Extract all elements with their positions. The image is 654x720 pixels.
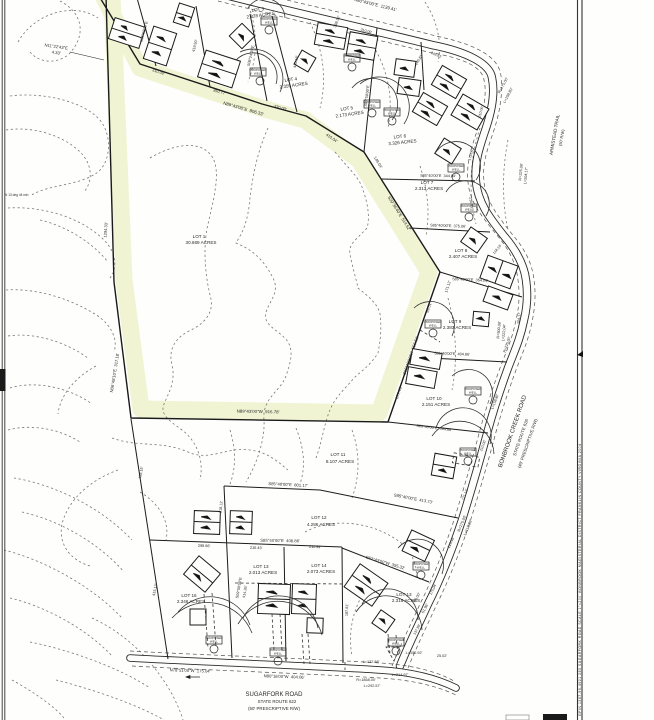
svg-text:LOT 13: LOT 13 [253, 564, 269, 569]
svg-text:WELL: WELL [388, 111, 397, 115]
svg-text:30.689 ACRES: 30.689 ACRES [186, 240, 217, 245]
svg-text:4.286 ACRES: 4.286 ACRES [307, 522, 335, 527]
svg-text:L=292.57': L=292.57' [364, 684, 381, 688]
svg-text:L=137.88': L=137.88' [363, 660, 380, 664]
svg-text:WELL: WELL [210, 639, 219, 643]
svg-text:2.073 ACRES: 2.073 ACRES [307, 569, 335, 574]
svg-text:LOT 12: LOT 12 [311, 515, 327, 520]
svg-text:WELL: WELL [254, 71, 263, 75]
svg-text:LOT 7: LOT 7 [421, 180, 434, 185]
svg-text:WELL: WELL [265, 20, 274, 24]
svg-text:LOT 13: LOT 13 [396, 592, 412, 597]
svg-text:2.383 ACRES: 2.383 ACRES [443, 325, 471, 330]
svg-text:WELL: WELL [417, 565, 426, 569]
svg-text:S85°40'00"E 344.04': S85°40'00"E 344.04' [420, 174, 456, 179]
svg-text:WELL: WELL [452, 167, 461, 171]
svg-text:(50' PRESCRIPTIVE R/W): (50' PRESCRIPTIVE R/W) [248, 706, 300, 711]
svg-text:LOT 11: LOT 11 [331, 452, 346, 457]
svg-text:LOT 8: LOT 8 [455, 248, 468, 253]
svg-text:N89°43'00"W 916.78': N89°43'00"W 916.78' [237, 409, 280, 415]
svg-text:WELL: WELL [368, 103, 377, 107]
svg-text:2.013 ACRES: 2.013 ACRES [249, 570, 277, 575]
svg-text:211.59': 211.59' [309, 545, 321, 549]
svg-text:GPIN 1387-96-4521 283 SUGARFOR: GPIN 1387-96-4521 283 SUGARFORK ROAD SCA… [578, 444, 582, 716]
svg-text:WELL: WELL [274, 651, 283, 655]
svg-text:L=214.97': L=214.97' [392, 673, 409, 677]
svg-text:2.313 ACRES: 2.313 ACRES [415, 186, 443, 191]
svg-text:2.151 ACRES: 2.151 ACRES [422, 402, 450, 407]
svg-text:WELL: WELL [464, 451, 473, 455]
svg-text:2.407 ACRES: 2.407 ACRES [449, 254, 477, 259]
svg-text:187.81': 187.81' [345, 603, 349, 616]
svg-text:STATE ROUTE 622: STATE ROUTE 622 [258, 699, 297, 704]
svg-text:2.346 ACRES: 2.346 ACRES [177, 599, 205, 604]
svg-text:210.43': 210.43' [250, 546, 263, 550]
svg-text:LOT 9: LOT 9 [449, 319, 462, 324]
svg-text:LOT 1: LOT 1 [193, 234, 206, 239]
svg-text:L=152.92': L=152.92' [406, 651, 423, 655]
svg-text:WELL: WELL [392, 641, 401, 645]
svg-text:S85°40'00"E 406.86': S85°40'00"E 406.86' [260, 538, 300, 544]
svg-text:WELL: WELL [429, 323, 438, 327]
svg-text:WELL: WELL [348, 57, 357, 61]
svg-text:25.02': 25.02' [437, 654, 448, 658]
svg-text:LOT 10: LOT 10 [426, 396, 442, 401]
svg-text:LOT 16: LOT 16 [181, 593, 197, 598]
svg-text:R=1868.00': R=1868.00' [356, 678, 376, 682]
svg-text:8.107 ACRES: 8.107 ACRES [326, 459, 354, 464]
svg-text:N 13 deg 44 min: N 13 deg 44 min [5, 193, 29, 197]
svg-text:WELL: WELL [469, 390, 478, 394]
svg-text:LOT 14: LOT 14 [311, 563, 327, 568]
svg-text:298.66': 298.66' [198, 544, 211, 548]
svg-text:SUGARFORK ROAD: SUGARFORK ROAD [245, 692, 303, 698]
